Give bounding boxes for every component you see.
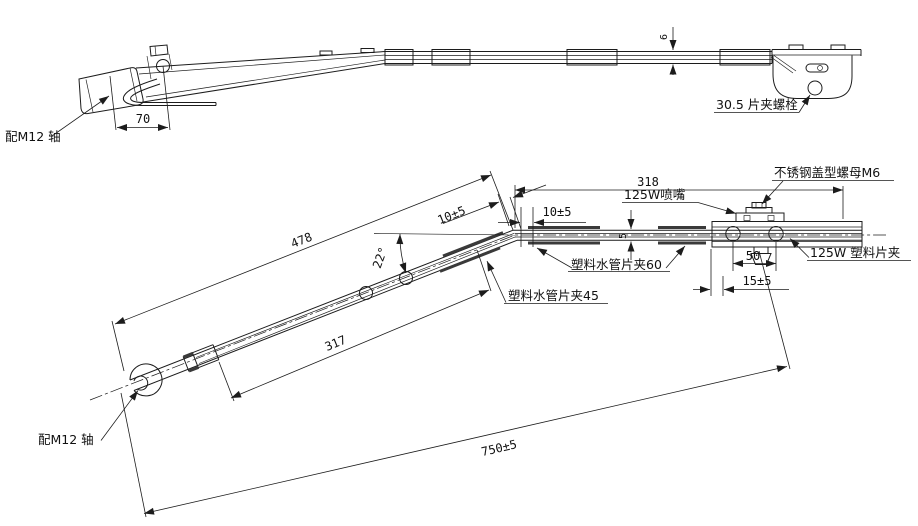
- nozzle-label-text: 125W喷嘴: [624, 187, 686, 202]
- cap-nut-label-text: 不锈钢盖型螺母M6: [774, 165, 880, 180]
- dimension-317: 317: [219, 250, 491, 401]
- dim-750-text: 750±5: [480, 437, 518, 459]
- dim-angle-text: 22°: [370, 245, 391, 270]
- wiper-arm-drawing: 70 6 配M12 轴 30.5 片夹螺栓: [0, 0, 918, 526]
- m12-axis-top-text: 配M12 轴: [5, 129, 61, 144]
- dim-6-text: 6: [659, 34, 670, 40]
- label-m12-axis-front: 配M12 轴: [38, 391, 138, 448]
- m12-axis-front-text: 配M12 轴: [38, 432, 94, 447]
- dim-70-text: 70: [136, 112, 150, 126]
- dim-10-horiz-text: 10±5: [543, 205, 572, 219]
- hose-clip-45-label-text: 塑料水管片夹45: [508, 288, 599, 303]
- label-hose-clip-60: 塑料水管片夹60: [537, 246, 685, 272]
- bolt-hole: [808, 81, 822, 95]
- top-view: 70 6 配M12 轴 30.5 片夹螺栓: [5, 27, 861, 144]
- dimension-angle-22: 22°: [370, 234, 515, 274]
- label-cap-nut: 不锈钢盖型螺母M6: [762, 165, 894, 204]
- dimension-10-slope: 10±5: [435, 185, 546, 229]
- dim-478-text: 478: [289, 230, 314, 251]
- blade-bolt-text: 30.5 片夹螺栓: [716, 97, 798, 112]
- front-view-shaft: [130, 230, 517, 390]
- top-view-end-cap: [771, 45, 861, 99]
- nozzle: [736, 203, 784, 222]
- front-view-head: [130, 364, 162, 396]
- hose-clip-45: [443, 233, 503, 256]
- label-blade-bolt: 30.5 片夹螺栓: [714, 95, 810, 113]
- dimension-15: 15±5: [693, 249, 789, 296]
- dimension-478: 478: [112, 171, 513, 371]
- hose-clip-60-label-text: 塑料水管片夹60: [571, 257, 662, 272]
- top-view-tab: [320, 51, 332, 55]
- slot: [806, 64, 828, 72]
- dimension-750: 750±5: [121, 251, 790, 517]
- hose-clip-45: [440, 248, 500, 272]
- label-nozzle: 125W喷嘴: [622, 187, 736, 214]
- plastic-clip-label-text: 125W 塑料片夹: [810, 245, 900, 260]
- dim-50-text: 50: [746, 249, 760, 263]
- dimension-5: 5: [618, 210, 631, 260]
- dim-5-text: 5: [618, 233, 629, 239]
- top-view-arm: [136, 49, 772, 103]
- centerline: [90, 235, 886, 400]
- top-view-pivot: [147, 45, 172, 79]
- shaft-hole: [400, 272, 413, 285]
- dimension-70: 70: [110, 66, 170, 130]
- dim-10-slope-text: 10±5: [435, 203, 467, 227]
- label-m12-axis-top: 配M12 轴: [5, 96, 109, 144]
- top-view-head: [79, 68, 143, 114]
- dim-15-text: 15±5: [743, 274, 772, 288]
- front-view: 478 317 750±5 318 10±5: [38, 165, 911, 517]
